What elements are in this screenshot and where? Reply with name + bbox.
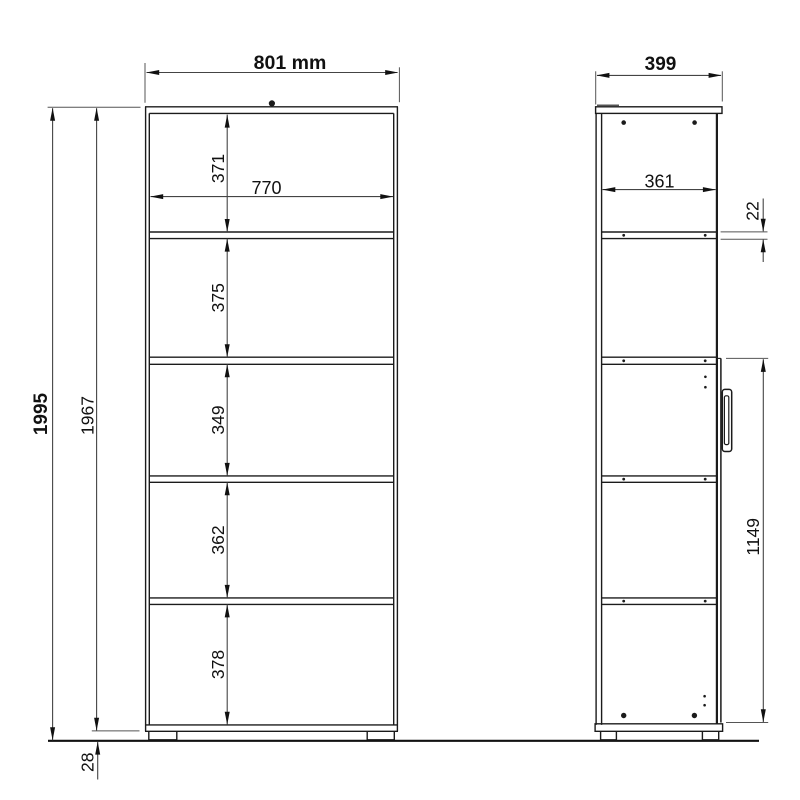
svg-text:770: 770 [251, 178, 281, 198]
svg-text:375: 375 [208, 283, 228, 312]
svg-text:1995: 1995 [31, 392, 52, 435]
svg-text:22: 22 [743, 201, 763, 220]
svg-text:801 mm: 801 mm [254, 52, 327, 74]
svg-text:28: 28 [77, 753, 97, 772]
svg-text:371: 371 [208, 154, 228, 183]
svg-text:378: 378 [208, 650, 228, 679]
svg-text:1967: 1967 [77, 396, 97, 435]
svg-text:362: 362 [208, 525, 228, 554]
svg-text:1149: 1149 [743, 518, 763, 556]
svg-text:349: 349 [208, 405, 228, 434]
svg-text:361: 361 [644, 172, 674, 192]
svg-text:399: 399 [645, 54, 677, 75]
